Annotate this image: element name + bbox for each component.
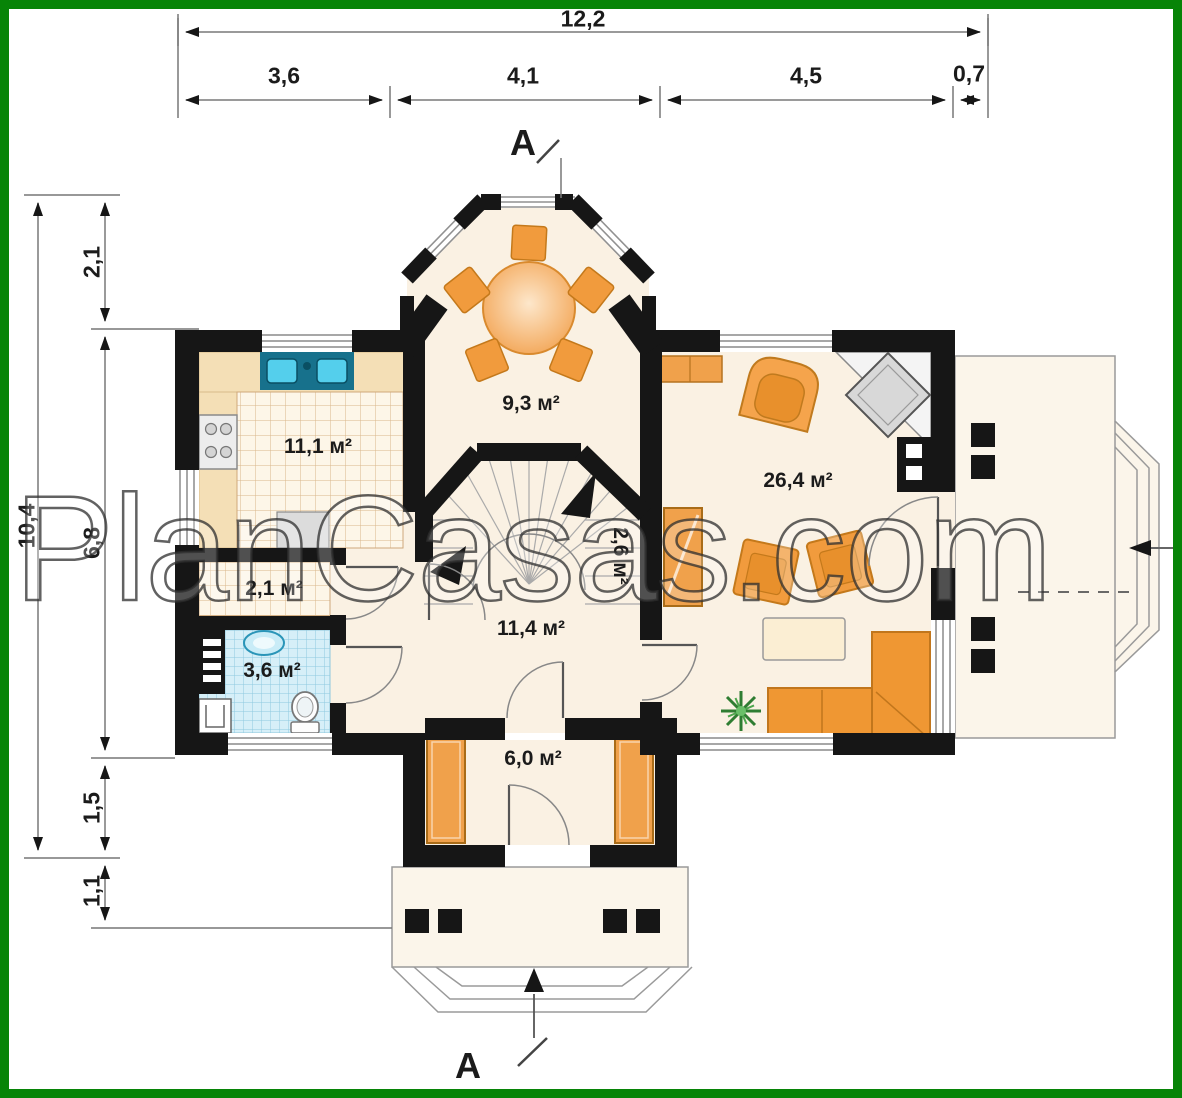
kitchen-sink-unit: [260, 352, 354, 390]
coffee-table: [763, 618, 845, 660]
dim-top-seg-4: 0,7: [953, 61, 985, 88]
terrace-floor: [955, 356, 1159, 738]
dim-left-seg-4: 1,1: [79, 875, 106, 907]
dim-top-total: 12,2: [561, 6, 606, 33]
porch-column: [438, 909, 462, 933]
section-mark-bottom: A: [455, 1045, 481, 1087]
dim-top-seg-3: 4,5: [790, 63, 822, 90]
room-label-living: 26,4 м²: [763, 469, 832, 493]
entry-arrow: [524, 968, 544, 992]
room-label-dining: 9,3 м²: [502, 392, 560, 416]
bathroom-sink: [244, 631, 284, 655]
toilet: [291, 692, 319, 733]
floor-plan-drawing: [0, 0, 1182, 1098]
room-label-vestibule: 6,0 м²: [504, 747, 562, 771]
washer: [199, 699, 231, 733]
room-label-kitchen: 11,1 м²: [284, 435, 352, 459]
porch-column: [405, 909, 429, 933]
porch-column: [636, 909, 660, 933]
section-mark-top: A: [510, 122, 536, 164]
dim-left-total: 10,4: [14, 504, 41, 549]
sideboard: [658, 356, 722, 382]
terrace-column: [971, 423, 995, 447]
section-slash-top: [537, 140, 559, 163]
dim-left-seg-3: 1,5: [79, 792, 106, 824]
dining-chair: [511, 225, 547, 261]
chimney: [897, 437, 955, 492]
terrace-column: [971, 455, 995, 479]
dim-top-seg-2: 4,1: [507, 63, 539, 90]
room-label-pantry: 2,1 м²: [245, 577, 303, 601]
terrace-column: [971, 649, 995, 673]
plant: [721, 691, 761, 731]
dim-left-seg-1: 2,1: [79, 246, 106, 278]
room-label-hall: 11,4 м²: [497, 617, 565, 641]
dim-top-seg-1: 3,6: [268, 63, 300, 90]
terrace-column: [971, 617, 995, 641]
stove: [199, 415, 237, 469]
room-label-bathroom: 3,6 м²: [243, 659, 301, 683]
section-top-lines: [537, 140, 561, 198]
armchair-right: [806, 530, 874, 598]
armchair-left: [733, 539, 799, 605]
kitchen-appliance: [277, 512, 329, 548]
radiator: [199, 630, 225, 694]
floor-plan-page: 12,2 3,6 4,1 4,5 0,7 10,4 2,1 6,8 1,5 1,…: [0, 0, 1182, 1098]
section-slash-bottom: [518, 1038, 547, 1066]
porch-column: [603, 909, 627, 933]
dim-left-seg-2: 6,8: [79, 527, 106, 559]
room-label-stairs: 2,6 м²: [608, 527, 632, 585]
